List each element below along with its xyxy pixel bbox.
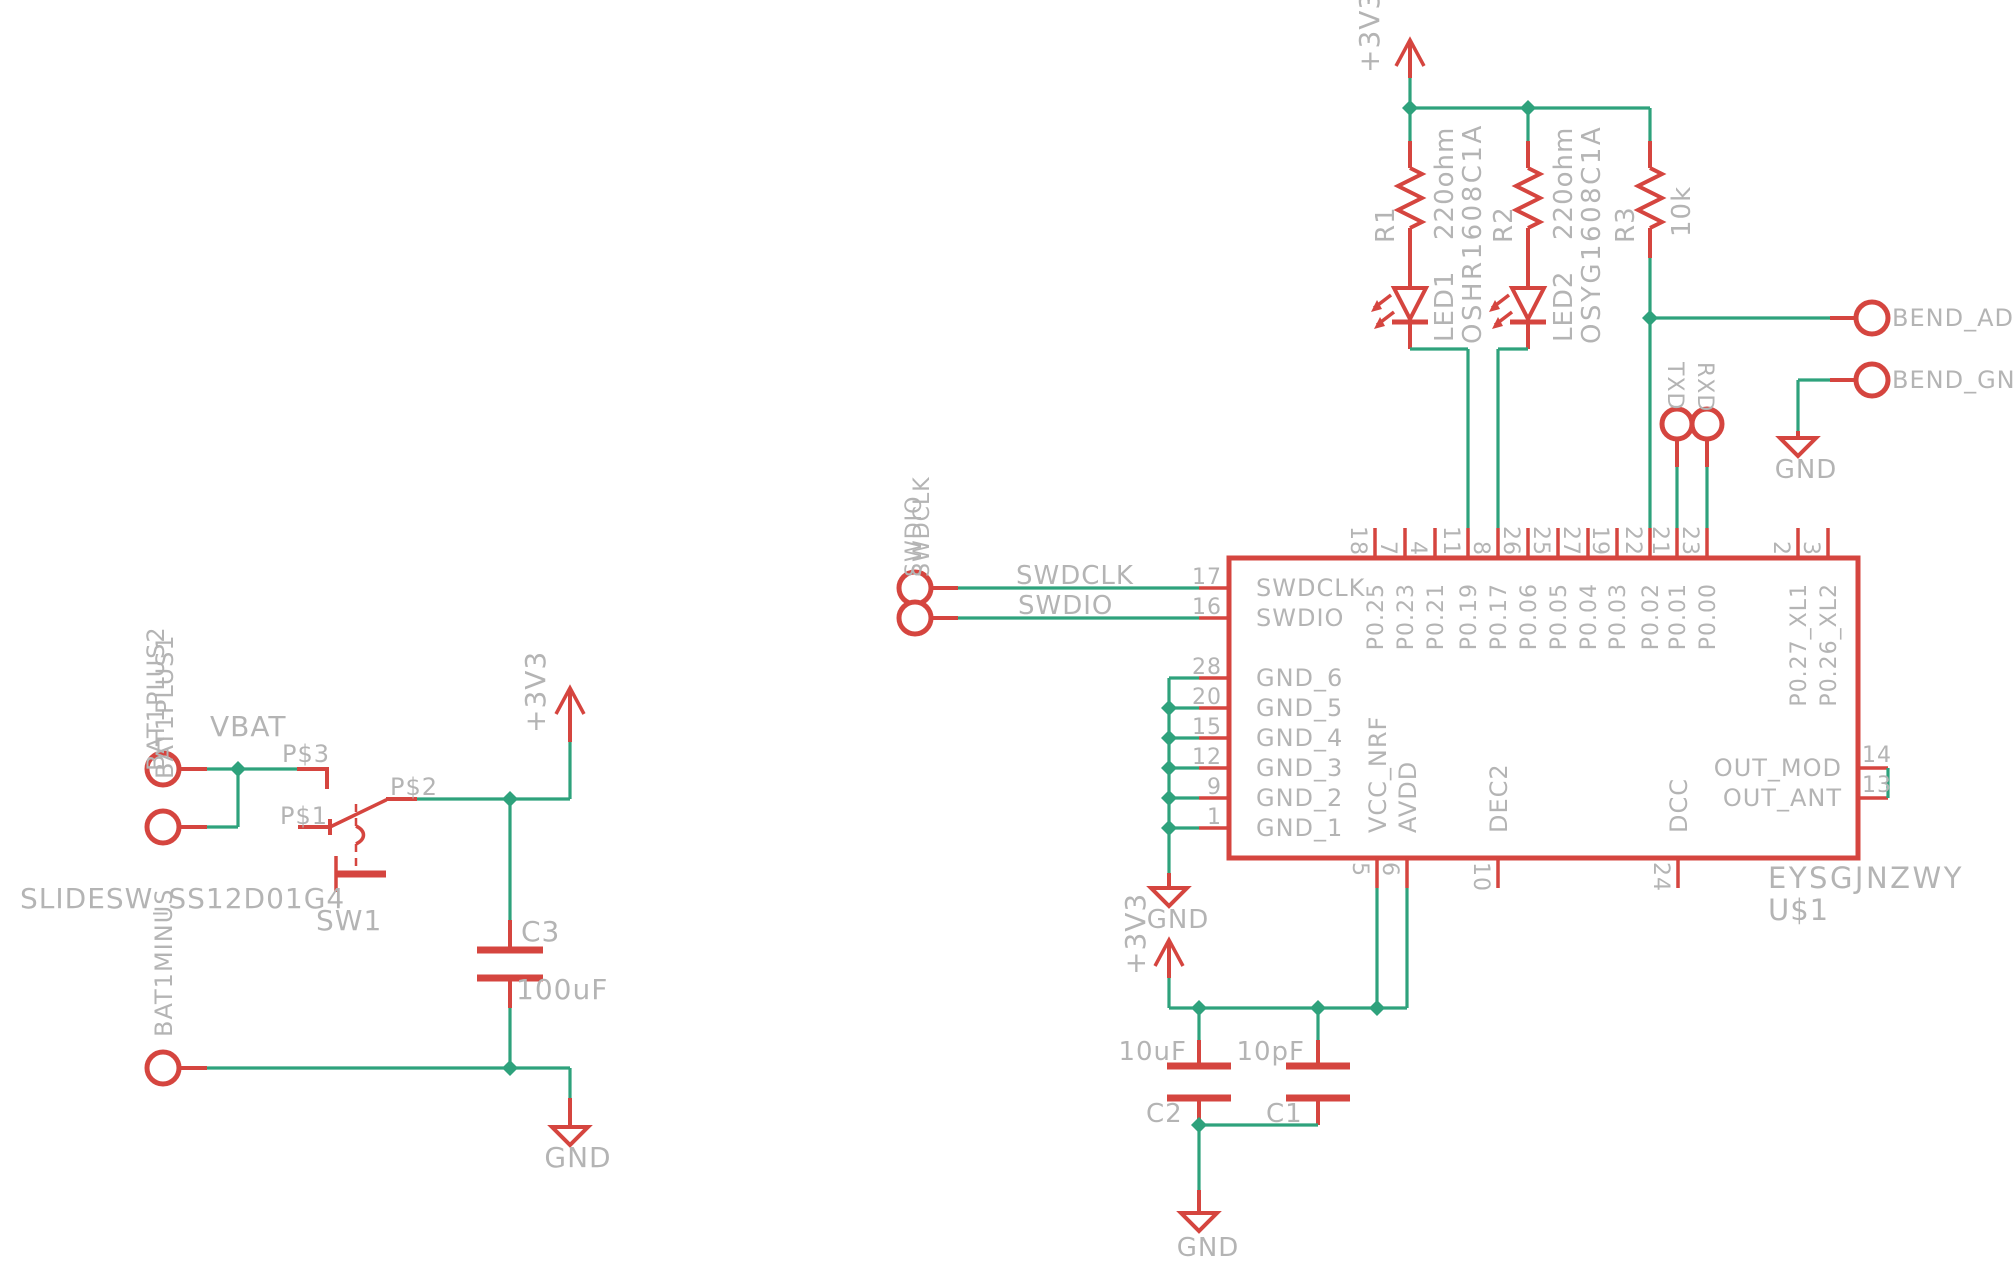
ic-pin-num: 6 [1377, 862, 1402, 877]
ic-pin-num: 18 [1345, 526, 1370, 556]
schematic-drawing: BAT1PLUS1 BAT1PLUS2 VBAT P$3 P$1 P$2 SLI… [0, 0, 2015, 1265]
ic-pin-name: P0.06 [1517, 583, 1542, 650]
ic-pin-num: 10 [1468, 862, 1493, 892]
3v3-label-bottom: +3V3 [1119, 893, 1152, 975]
swdclk-net-label: SWDCLK [1016, 561, 1134, 591]
ic-pin-num: 26 [1498, 526, 1523, 556]
ic-pin-name: GND_4 [1256, 724, 1343, 752]
net-led2-wire [1498, 349, 1528, 528]
ic-pin-name: SWDIO [1256, 604, 1344, 632]
resistor-r3[interactable] [1638, 141, 1662, 258]
ic-pin-name: P0.03 [1606, 583, 1631, 650]
pad-bend-gnd[interactable] [1830, 364, 1888, 396]
pad-bend-adc[interactable] [1830, 302, 1888, 334]
junction-dot [1161, 760, 1177, 776]
ic-pin-name: P0.05 [1547, 583, 1572, 650]
junction-dot [1191, 1000, 1207, 1016]
gnd-label-bend: GND [1775, 455, 1838, 485]
ic-pin-name: OUT_ANT [1723, 784, 1842, 812]
ic-pin-name: P0.01 [1666, 583, 1691, 650]
bend-gnd-label: BEND_GND [1892, 366, 2015, 394]
ic-pin-name: AVDD [1394, 761, 1422, 833]
ic-pin-num: 2 [1768, 541, 1793, 556]
sw1-actuator-spring [356, 826, 364, 844]
power-gnd-symbol-bend [1780, 431, 1816, 456]
net-gnd-bus [1161, 678, 1199, 873]
ic-pin-num: 14 [1862, 743, 1892, 768]
txd-pad-circle[interactable] [1662, 409, 1692, 439]
rxd-label: RXD [1692, 362, 1717, 412]
ic-pin-name: P0.04 [1577, 583, 1602, 650]
ic-pin-name: P0.00 [1696, 583, 1721, 650]
ic-pin-name: P0.17 [1487, 583, 1512, 650]
led1-diode-icon [1371, 288, 1428, 329]
led2-symbol[interactable] [1489, 288, 1546, 349]
net-uart-wires [1677, 467, 1707, 528]
pad-bat1minus[interactable] [147, 1052, 207, 1084]
ic-pin-name: OUT_MOD [1714, 754, 1842, 782]
bat1plus2-label: BAT1PLUS2 [142, 626, 170, 771]
ic-bottom-pin-stubs [1377, 858, 1678, 888]
led2-name-label: LED2 [1549, 271, 1579, 342]
r3-zigzag-icon [1638, 168, 1662, 228]
ic-pin-name: GND_2 [1256, 784, 1343, 812]
ic-pin-num: 19 [1587, 526, 1612, 556]
junction-dot [1161, 730, 1177, 746]
ic-pin-name: GND_6 [1256, 664, 1343, 692]
ic-pin-name: P0.19 [1457, 583, 1482, 650]
power-gnd-symbol-caps [1181, 1190, 1217, 1231]
c2-name-label: C2 [1146, 1099, 1183, 1129]
gnd-triangle-icon [1181, 1213, 1217, 1231]
ic-pin-num: 7 [1375, 541, 1400, 556]
power-gnd-symbol-bus [1151, 873, 1187, 906]
c3-name-label: C3 [521, 915, 560, 948]
ic-pin-name: GND_1 [1256, 814, 1343, 842]
junction-dot [1191, 1117, 1207, 1133]
ic-pin-name: DEC2 [1485, 763, 1513, 833]
ic-pin-name: P0.25 [1364, 583, 1389, 650]
resistor-r2[interactable] [1516, 141, 1540, 288]
txd-label: TXD [1662, 361, 1687, 410]
r2-name-label: R2 [1489, 206, 1519, 243]
led1-name-label: LED1 [1430, 271, 1460, 342]
led1-symbol[interactable] [1371, 288, 1428, 349]
led2-diode-icon [1489, 288, 1546, 329]
ic-pin-num: 12 [1192, 745, 1222, 770]
3v3-label-top: +3V3 [1353, 0, 1386, 73]
r3-name-label: R3 [1611, 206, 1641, 243]
sw1-pin-p1-label: P$1 [280, 802, 328, 830]
resistor-r1[interactable] [1398, 141, 1422, 288]
ic-pin-name: P0.21 [1424, 583, 1449, 650]
r1-value-label: 220ohm [1430, 127, 1460, 240]
net-led1-wire [1410, 349, 1468, 528]
ic-pin-num: 16 [1192, 595, 1222, 620]
power-gnd-symbol-left [552, 1098, 588, 1145]
vbat-net-label: VBAT [210, 710, 286, 743]
r2-zigzag-icon [1516, 168, 1540, 228]
sw1-pin-p2-label: P$2 [390, 773, 438, 801]
pad-swdio[interactable] [899, 602, 958, 634]
ic-pin-num: 20 [1192, 685, 1222, 710]
power-3v3-symbol-bottom [1155, 940, 1183, 978]
rxd-pad-circle[interactable] [1692, 409, 1722, 439]
junction-dot [1161, 700, 1177, 716]
swdio-pad-circle[interactable] [899, 602, 931, 634]
gnd-label-caps: GND [1177, 1233, 1240, 1263]
pad-bat1plus2[interactable] [147, 811, 207, 843]
ic-name-label: U$1 [1768, 893, 1829, 927]
sw1-name-label: SW1 [316, 904, 382, 937]
swdio-net-label: SWDIO [1018, 591, 1113, 621]
ic-pin-num: 1 [1207, 805, 1222, 830]
bend-adc-pad-circle[interactable] [1856, 302, 1888, 334]
led2-value-label: OSYG1608C1A [1577, 125, 1607, 344]
ic-pin-num: 25 [1528, 526, 1553, 556]
ic-pin-name: DCC [1665, 778, 1693, 833]
junction-dot [1402, 100, 1418, 116]
ic-pin-num: 17 [1192, 565, 1222, 590]
sw1-value-label: SLIDESW_SS12D01G4 [20, 882, 345, 915]
ic-pin-num: 23 [1677, 526, 1702, 556]
junction-dot [1369, 1000, 1385, 1016]
pad-rxd[interactable] [1692, 409, 1722, 467]
ic-pin-num: 3 [1798, 541, 1823, 556]
c3-value-label: 100uF [516, 973, 608, 1006]
power-3v3-symbol-top [1396, 40, 1424, 78]
ic-pin-num: 9 [1207, 775, 1222, 800]
3v3-label-left: +3V3 [519, 651, 552, 733]
c2-value-label: 10uF [1118, 1037, 1187, 1067]
gnd-triangle-icon [1151, 888, 1187, 906]
c1-value-label: 10pF [1236, 1037, 1305, 1067]
gnd-label-left: GND [544, 1141, 611, 1174]
junction-dot [230, 761, 246, 777]
r2-value-label: 220ohm [1549, 127, 1579, 240]
gnd-label-bus: GND [1147, 905, 1210, 935]
junction-dot [1161, 790, 1177, 806]
ic-pin-name: GND_3 [1256, 754, 1343, 782]
ic-pin-name: VCC_NRF [1364, 716, 1392, 833]
net-gnd-left-wire [207, 1008, 570, 1098]
bend-gnd-pad-circle[interactable] [1856, 364, 1888, 396]
ic-pin-num: 27 [1558, 526, 1583, 556]
junction-dot [1161, 820, 1177, 836]
power-3v3-symbol-left [556, 688, 584, 742]
net-bend-gnd-wire [1798, 380, 1830, 431]
r1-name-label: R1 [1371, 206, 1401, 243]
ic-pin-name: SWDCLK [1256, 574, 1366, 602]
ic-pin-num: 11 [1438, 526, 1463, 556]
r3-value-label: 10k [1667, 186, 1697, 237]
junction-dot [1310, 1000, 1326, 1016]
ic-pin-num: 21 [1647, 526, 1672, 556]
junction-dot [502, 1060, 518, 1076]
ic-pin-name: P0.23 [1394, 583, 1419, 650]
bat1minus-pad-circle[interactable] [147, 1052, 179, 1084]
net-3v3-left-wire [417, 742, 570, 920]
ic-pin-num: 5 [1347, 862, 1372, 877]
ic-pin-name: P0.26_XL2 [1817, 583, 1842, 707]
bat1minus-label: BAT1MINUS [150, 889, 178, 1038]
gnd-triangle-icon [1780, 438, 1816, 456]
ic-pin-num: 24 [1648, 862, 1673, 892]
c1-plates-icon [1286, 1066, 1350, 1098]
swdio-pad-label: SWDIO [902, 496, 927, 577]
ic-pin-num: 15 [1192, 715, 1222, 740]
ic-pin-name: P0.27_XL1 [1787, 583, 1812, 707]
bat1plus2-pad-circle[interactable] [147, 811, 179, 843]
sw1-pin-p3-stub [297, 769, 327, 789]
pad-txd[interactable] [1662, 409, 1692, 467]
junction-dot [1642, 310, 1658, 326]
ic-pin-name: GND_5 [1256, 694, 1343, 722]
r1-zigzag-icon [1398, 168, 1422, 228]
sw1-lever [330, 800, 386, 827]
junction-dot [502, 791, 518, 807]
ic-pin-num: 13 [1862, 773, 1892, 798]
schematic-canvas: BAT1PLUS1 BAT1PLUS2 VBAT P$3 P$1 P$2 SLI… [0, 0, 2015, 1265]
sw1-pin-p3-label: P$3 [282, 740, 330, 768]
bend-adc-label: BEND_ADC [1892, 304, 2015, 332]
ic-pin-num: 8 [1468, 541, 1493, 556]
ic-value-label: EYSGJNZWY [1768, 861, 1964, 895]
led1-value-label: OSHR1608C1A [1458, 123, 1488, 344]
c2-plates-icon [1167, 1066, 1231, 1098]
ic-pin-name: P0.02 [1639, 583, 1664, 650]
ic-pin-num: 28 [1192, 655, 1222, 680]
ic-pin-num: 22 [1620, 526, 1645, 556]
ic-pin-num: 4 [1405, 541, 1430, 556]
junction-dot [1520, 100, 1536, 116]
